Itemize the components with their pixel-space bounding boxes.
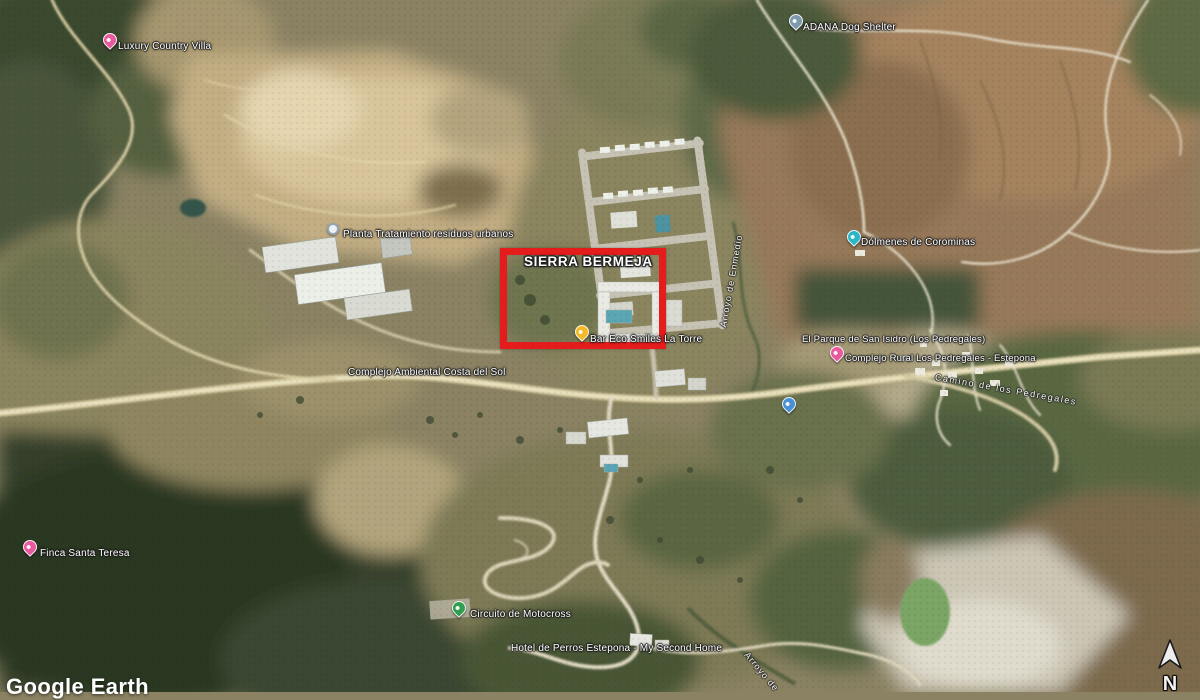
compass-control[interactable]: N <box>1152 637 1188 692</box>
place-label: Circuito de Motocross <box>470 609 571 620</box>
place-planta-tratamiento[interactable]: Planta Tratamiento residuos urbanos <box>343 224 513 242</box>
place-label: Finca Santa Teresa <box>40 548 130 559</box>
place-dolmenes-de-corominas[interactable]: Dólmenes de Corominas <box>861 232 975 250</box>
place-label: Bar Eco Smiles La Torre <box>590 334 702 345</box>
place-parque-san-isidro[interactable]: El Parque de San Isidro (Los Pedregales) <box>802 329 985 347</box>
place-label: Complejo Ambiental Costa del Sol <box>348 367 506 378</box>
place-label: El Parque de San Isidro (Los Pedregales) <box>802 334 985 345</box>
place-label: Dólmenes de Corominas <box>861 237 975 248</box>
place-label: Luxury Country Villa <box>118 41 211 52</box>
place-label: Complejo Rural Los Pedregales - Estepona <box>845 353 1036 364</box>
place-luxury-country-villa[interactable]: Luxury Country Villa <box>118 36 211 54</box>
place-bar-eco-smiles[interactable]: Bar Eco Smiles La Torre <box>590 329 702 347</box>
map-pin-planta-tratamiento[interactable] <box>327 223 339 235</box>
place-complejo-rural-pedregales[interactable]: Complejo Rural Los Pedregales - Estepona <box>845 348 1036 366</box>
place-label: Hotel de Perros Estepona - My Second Hom… <box>511 643 722 654</box>
place-hotel-de-perros[interactable]: Hotel de Perros Estepona - My Second Hom… <box>511 638 722 656</box>
place-label: Planta Tratamiento residuos urbanos <box>343 229 513 240</box>
place-complejo-ambiental[interactable]: Complejo Ambiental Costa del Sol <box>348 362 506 380</box>
place-finca-santa-teresa[interactable]: Finca Santa Teresa <box>40 543 130 561</box>
google-earth-logo: Google Earth <box>6 674 149 700</box>
place-label: ADANA Dog Shelter <box>803 22 896 33</box>
compass-north-label: N <box>1152 676 1188 692</box>
place-adana-dog-shelter[interactable]: ADANA Dog Shelter <box>803 17 896 35</box>
place-circuito-motocross[interactable]: Circuito de Motocross <box>470 604 571 622</box>
north-arrow-icon <box>1155 637 1185 671</box>
map-viewport[interactable]: SIERRA BERMEJA Luxury Country Villa ADAN… <box>0 0 1200 692</box>
highlight-caption: SIERRA BERMEJA <box>524 254 653 269</box>
